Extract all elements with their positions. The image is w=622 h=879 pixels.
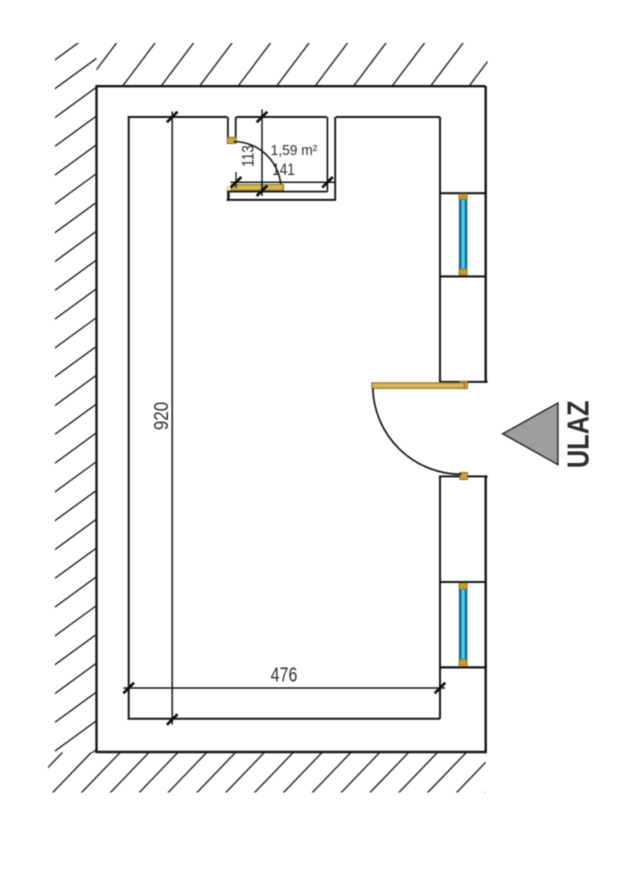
svg-text:476: 476: [271, 664, 298, 686]
svg-text:113: 113: [239, 145, 258, 167]
svg-text:920: 920: [150, 402, 173, 430]
svg-text:1,59 m²: 1,59 m²: [271, 142, 318, 158]
svg-text:ULAZ: ULAZ: [561, 400, 596, 468]
svg-text:141: 141: [272, 161, 295, 180]
